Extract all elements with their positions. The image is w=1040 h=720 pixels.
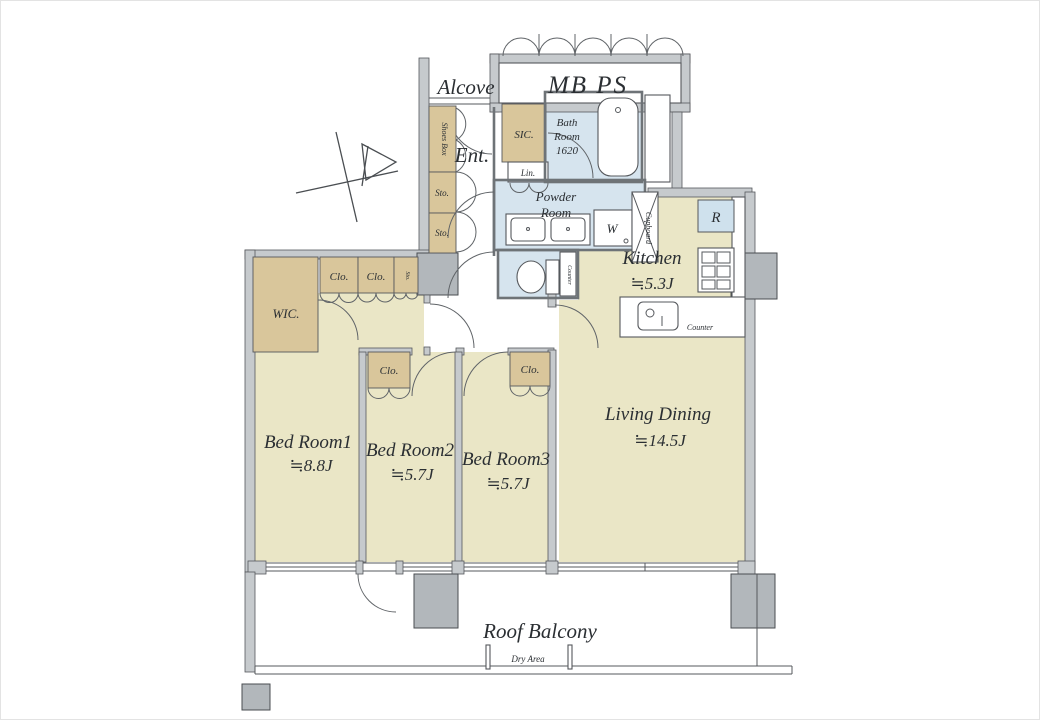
stove [698, 248, 734, 292]
balcony-door-arc [358, 574, 396, 612]
toilet-tank [546, 260, 559, 294]
balcony-door-opening [363, 563, 396, 571]
toilet-bowl [517, 261, 545, 293]
wall-living-hall-top [548, 293, 556, 307]
label-closet-1: Clo. [330, 271, 349, 283]
label-bath-2: Room [553, 131, 580, 143]
wall-bed1-door-jamb-top [424, 295, 430, 303]
wall-balcony-left [245, 572, 255, 672]
label-roof-balcony: Roof Balcony [482, 619, 597, 643]
label-bedroom3-size: ≒5.7J [486, 474, 530, 493]
label-living-size: ≒14.5J [634, 431, 687, 450]
vanity-sink-left [511, 218, 545, 241]
label-storage-b: Sto. [435, 228, 449, 238]
floor-plan-page: Alcove MB PS Ent. Shoes Box Sto. Sto. SI… [0, 0, 1040, 720]
label-closet-bedroom3: Clo. [521, 364, 540, 376]
label-wic: WIC. [272, 306, 299, 321]
wall-bed1-bed2 [359, 352, 366, 562]
label-toilet-counter: Counter [566, 265, 572, 285]
label-bedroom3-name: Bed Room3 [462, 449, 550, 470]
pillar-balcony-foot [242, 684, 270, 710]
label-kitchen-size: ≒5.3J [630, 274, 674, 293]
label-powder-1: Powder [535, 189, 577, 204]
vanity-sink-right [551, 218, 585, 241]
balcony-railing [255, 666, 792, 674]
dry-area-post-right [568, 645, 572, 669]
label-bedroom2-size: ≒5.7J [390, 465, 434, 484]
label-bath-3: 1620 [556, 145, 579, 157]
label-sic: SIC. [514, 129, 533, 141]
label-mbps: MB PS [547, 72, 628, 99]
label-entrance: Ent. [454, 143, 489, 167]
label-kitchen-counter: Counter [687, 323, 714, 332]
window-band [266, 563, 738, 571]
wall-bed2-bed3 [455, 352, 462, 562]
floor-plan-drawing: Alcove MB PS Ent. Shoes Box Sto. Sto. SI… [0, 0, 1040, 720]
label-washer: W [607, 221, 619, 236]
mbps-door-arcs [503, 34, 683, 56]
label-dry-area: Dry Area [510, 654, 545, 664]
label-bedroom1-name: Bed Room1 [264, 432, 352, 453]
label-bedroom2-name: Bed Room2 [366, 440, 455, 461]
wall-kitchen-top [648, 188, 752, 197]
wall-outer-right [745, 192, 755, 570]
label-powder-2: Room [540, 205, 571, 220]
dry-area-post-left [486, 645, 490, 669]
label-storage-a: Sto. [435, 188, 449, 198]
label-closet-2: Clo. [367, 271, 386, 283]
label-alcove: Alcove [435, 75, 494, 99]
wall-upper-right [672, 112, 682, 192]
north-arrow-icon [296, 132, 398, 222]
pillar-balcony-right [731, 574, 775, 628]
label-closet-bedroom2: Clo. [380, 365, 399, 377]
pipe-space-niche [645, 95, 670, 182]
wall-bottom-right-end [738, 561, 755, 574]
bathtub [598, 98, 638, 176]
label-bedroom1-size: ≒8.8J [289, 456, 333, 475]
walk-in-closet [253, 257, 318, 352]
wall-bottom-b [396, 561, 403, 574]
wall-bed1-door-jamb-bottom [424, 347, 430, 355]
label-cupboard: Cupboard [644, 212, 653, 245]
kitchen-sink [638, 302, 678, 330]
label-shoes-box: Shoes Box [440, 122, 449, 156]
wall-upper-left [419, 58, 429, 256]
label-living-name: Living Dining [604, 404, 711, 425]
pillar-balcony-mid [414, 574, 458, 628]
label-storage-small: Sto. [404, 271, 410, 280]
label-fridge: R [710, 210, 720, 226]
wall-mbps-top [490, 54, 690, 63]
wall-bottom-a [356, 561, 363, 574]
pillar-hall [417, 253, 458, 295]
label-bath-1: Bath [557, 117, 578, 129]
wall-bottom-d [546, 561, 558, 574]
label-linen: Lin. [520, 168, 535, 178]
label-kitchen-name: Kitchen [621, 248, 681, 269]
wall-bottom-c [452, 561, 464, 574]
